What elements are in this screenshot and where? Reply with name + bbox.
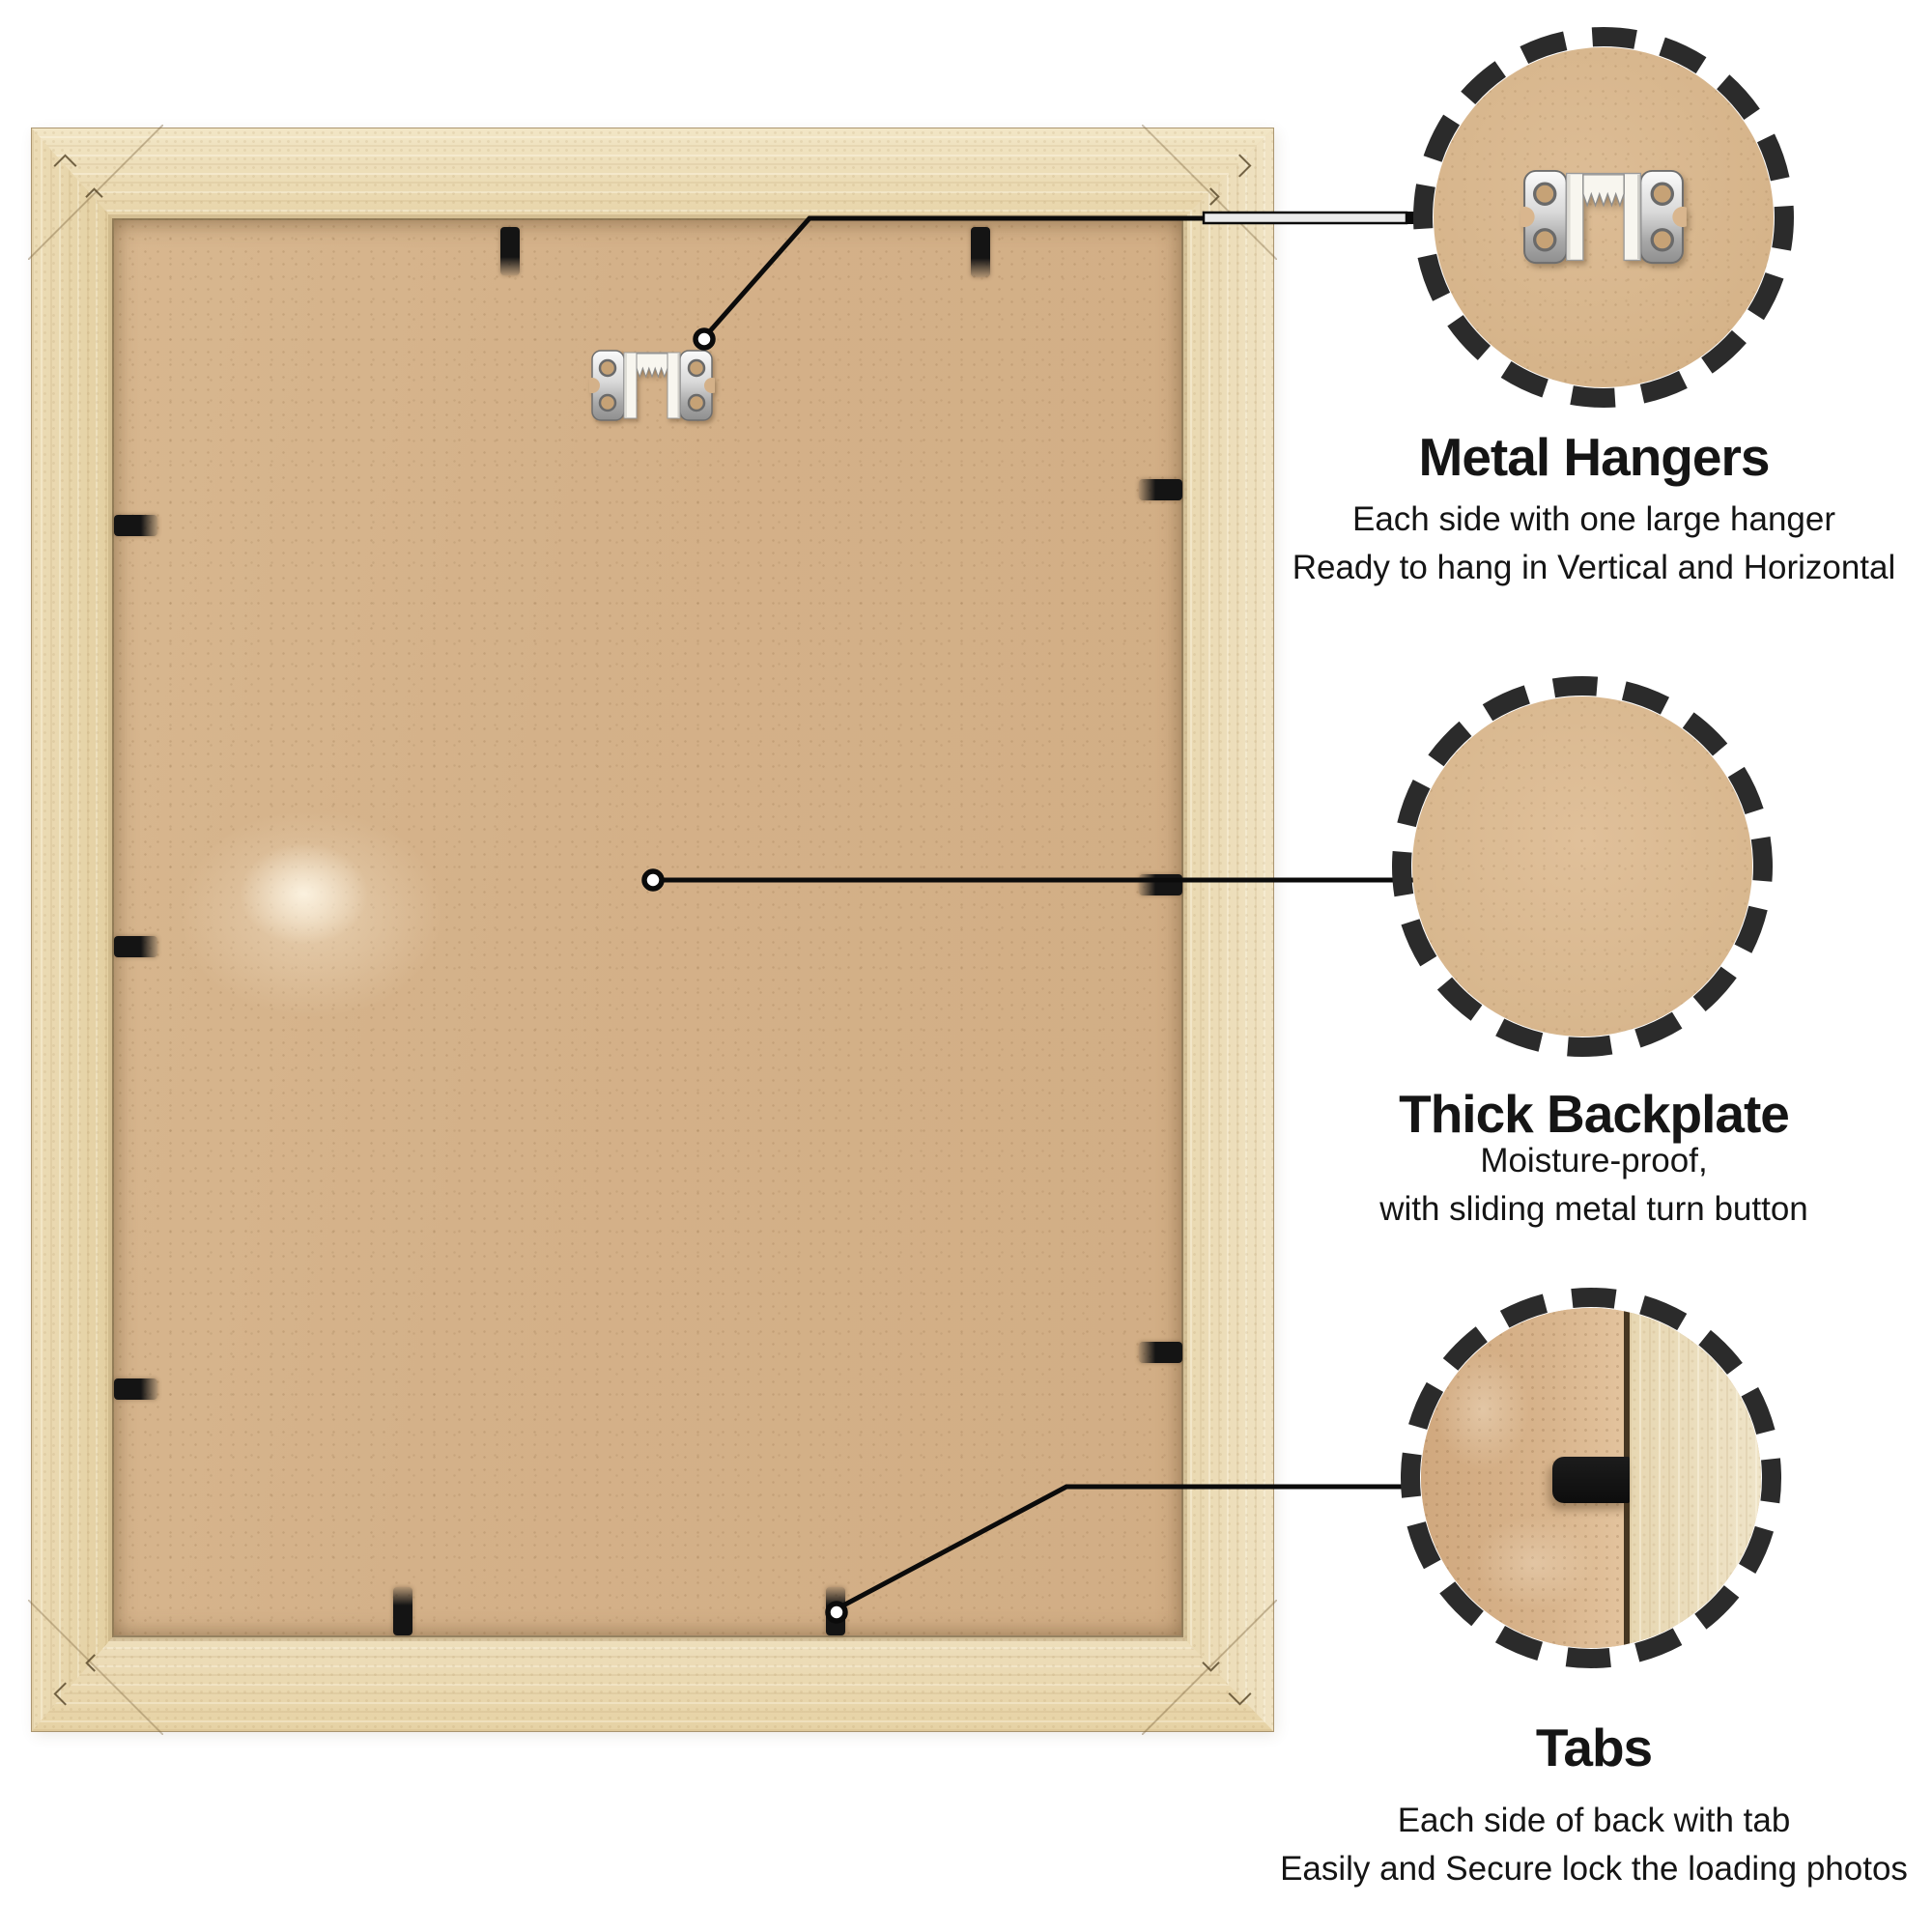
locking-tab-closeup-icon [1552, 1457, 1630, 1503]
feature-description-thick-backplate: Moisture-proof, with sliding metal turn … [1188, 1137, 1932, 1234]
backplate [114, 220, 1181, 1635]
description-line: with sliding metal turn button [1188, 1185, 1932, 1234]
frame-wood-left [32, 128, 114, 1731]
metal-hanger-closeup-icon [1520, 163, 1687, 270]
description-line: Each side of back with tab [1188, 1797, 1932, 1845]
frame-wood-top [32, 128, 1273, 220]
description-line: Each side with one large hanger [1188, 496, 1932, 544]
locking-tab [971, 227, 990, 277]
description-line: Ready to hang in Vertical and Horizontal [1188, 544, 1932, 592]
locking-tab [500, 227, 520, 275]
frame-wood-closeup [1630, 1308, 1761, 1648]
product-diagram: Metal Hangers Each side with one large h… [0, 0, 1932, 1932]
metal-hanger-icon [589, 345, 715, 426]
locking-tab [114, 1378, 157, 1400]
corner-vnail-icon [85, 187, 102, 205]
feature-title-thick-backplate: Thick Backplate [1188, 1083, 1932, 1145]
corner-vnail-icon [1228, 154, 1251, 177]
feature-title-tabs: Tabs [1188, 1717, 1932, 1778]
description-line: Moisture-proof, [1188, 1137, 1932, 1185]
feature-description-tabs: Each side of back with tab Easily and Se… [1188, 1797, 1932, 1893]
frame-wood-bottom [32, 1635, 1273, 1731]
feature-title-metal-hangers: Metal Hangers [1188, 426, 1932, 488]
corner-vnail-icon [53, 154, 76, 177]
picture-frame-back [32, 128, 1273, 1731]
detail-circle-tabs [1421, 1308, 1761, 1648]
frame-wood-right [1181, 128, 1273, 1731]
detail-circle-thick-backplate [1412, 696, 1752, 1037]
locking-tab [114, 936, 157, 957]
locking-tab [1139, 479, 1182, 500]
feature-description-metal-hangers: Each side with one large hanger Ready to… [1188, 496, 1932, 592]
locking-tab [1139, 874, 1182, 895]
detail-circle-metal-hangers [1434, 47, 1774, 387]
locking-tab [114, 515, 157, 536]
corner-vnail-icon [85, 1654, 102, 1671]
corner-vnail-icon [1202, 1654, 1219, 1671]
locking-tab [1139, 1342, 1182, 1363]
description-line: Easily and Secure lock the loading photo… [1188, 1845, 1932, 1893]
locking-tab [826, 1587, 845, 1635]
corner-vnail-icon [1228, 1682, 1251, 1705]
corner-vnail-icon [53, 1682, 76, 1705]
locking-tab [393, 1587, 412, 1635]
corner-vnail-icon [1202, 187, 1219, 205]
